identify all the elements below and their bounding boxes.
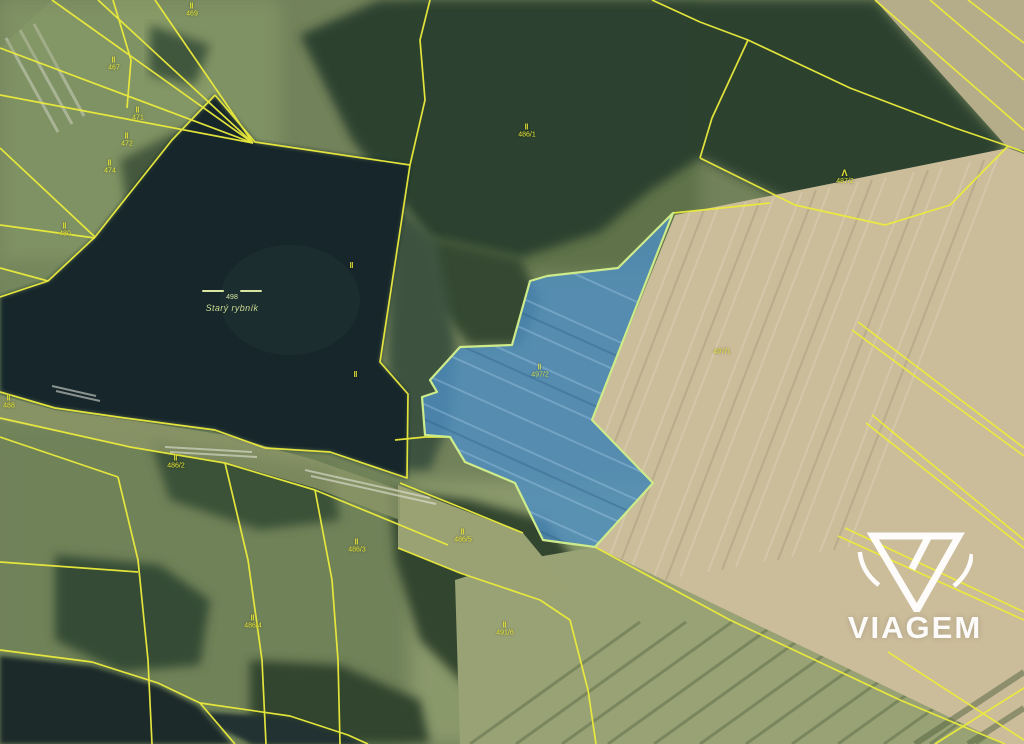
dash-icon	[240, 290, 262, 292]
pond-name: Starý rybník	[202, 303, 262, 314]
map-viewport[interactable]: ‖469‖467‖471‖472‖474‖480‖488‖486/1Λ487/2…	[0, 0, 1024, 744]
pond-parcel-number: 498	[202, 294, 262, 303]
aerial-basemap	[0, 0, 1024, 744]
dash-icon	[202, 290, 224, 292]
pond-label: 498 Starý rybník	[202, 290, 262, 314]
pond-label-dashes	[202, 290, 262, 292]
